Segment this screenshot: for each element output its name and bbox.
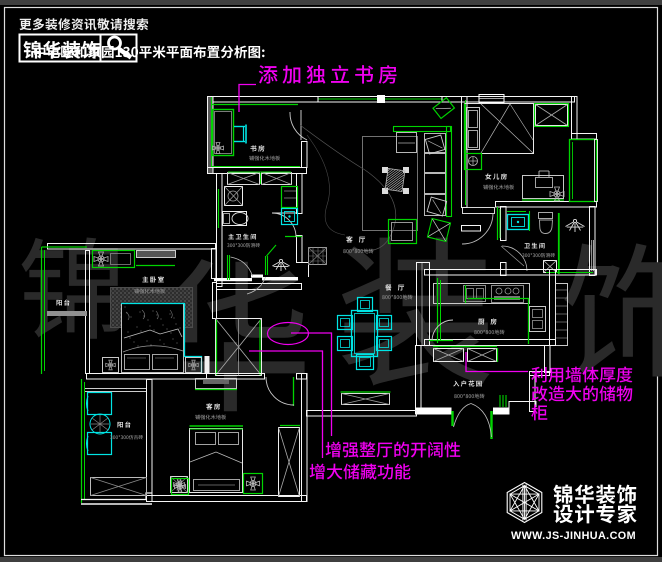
svg-text:WWW.JS-JINHUA.COM: WWW.JS-JINHUA.COM [511, 530, 636, 542]
